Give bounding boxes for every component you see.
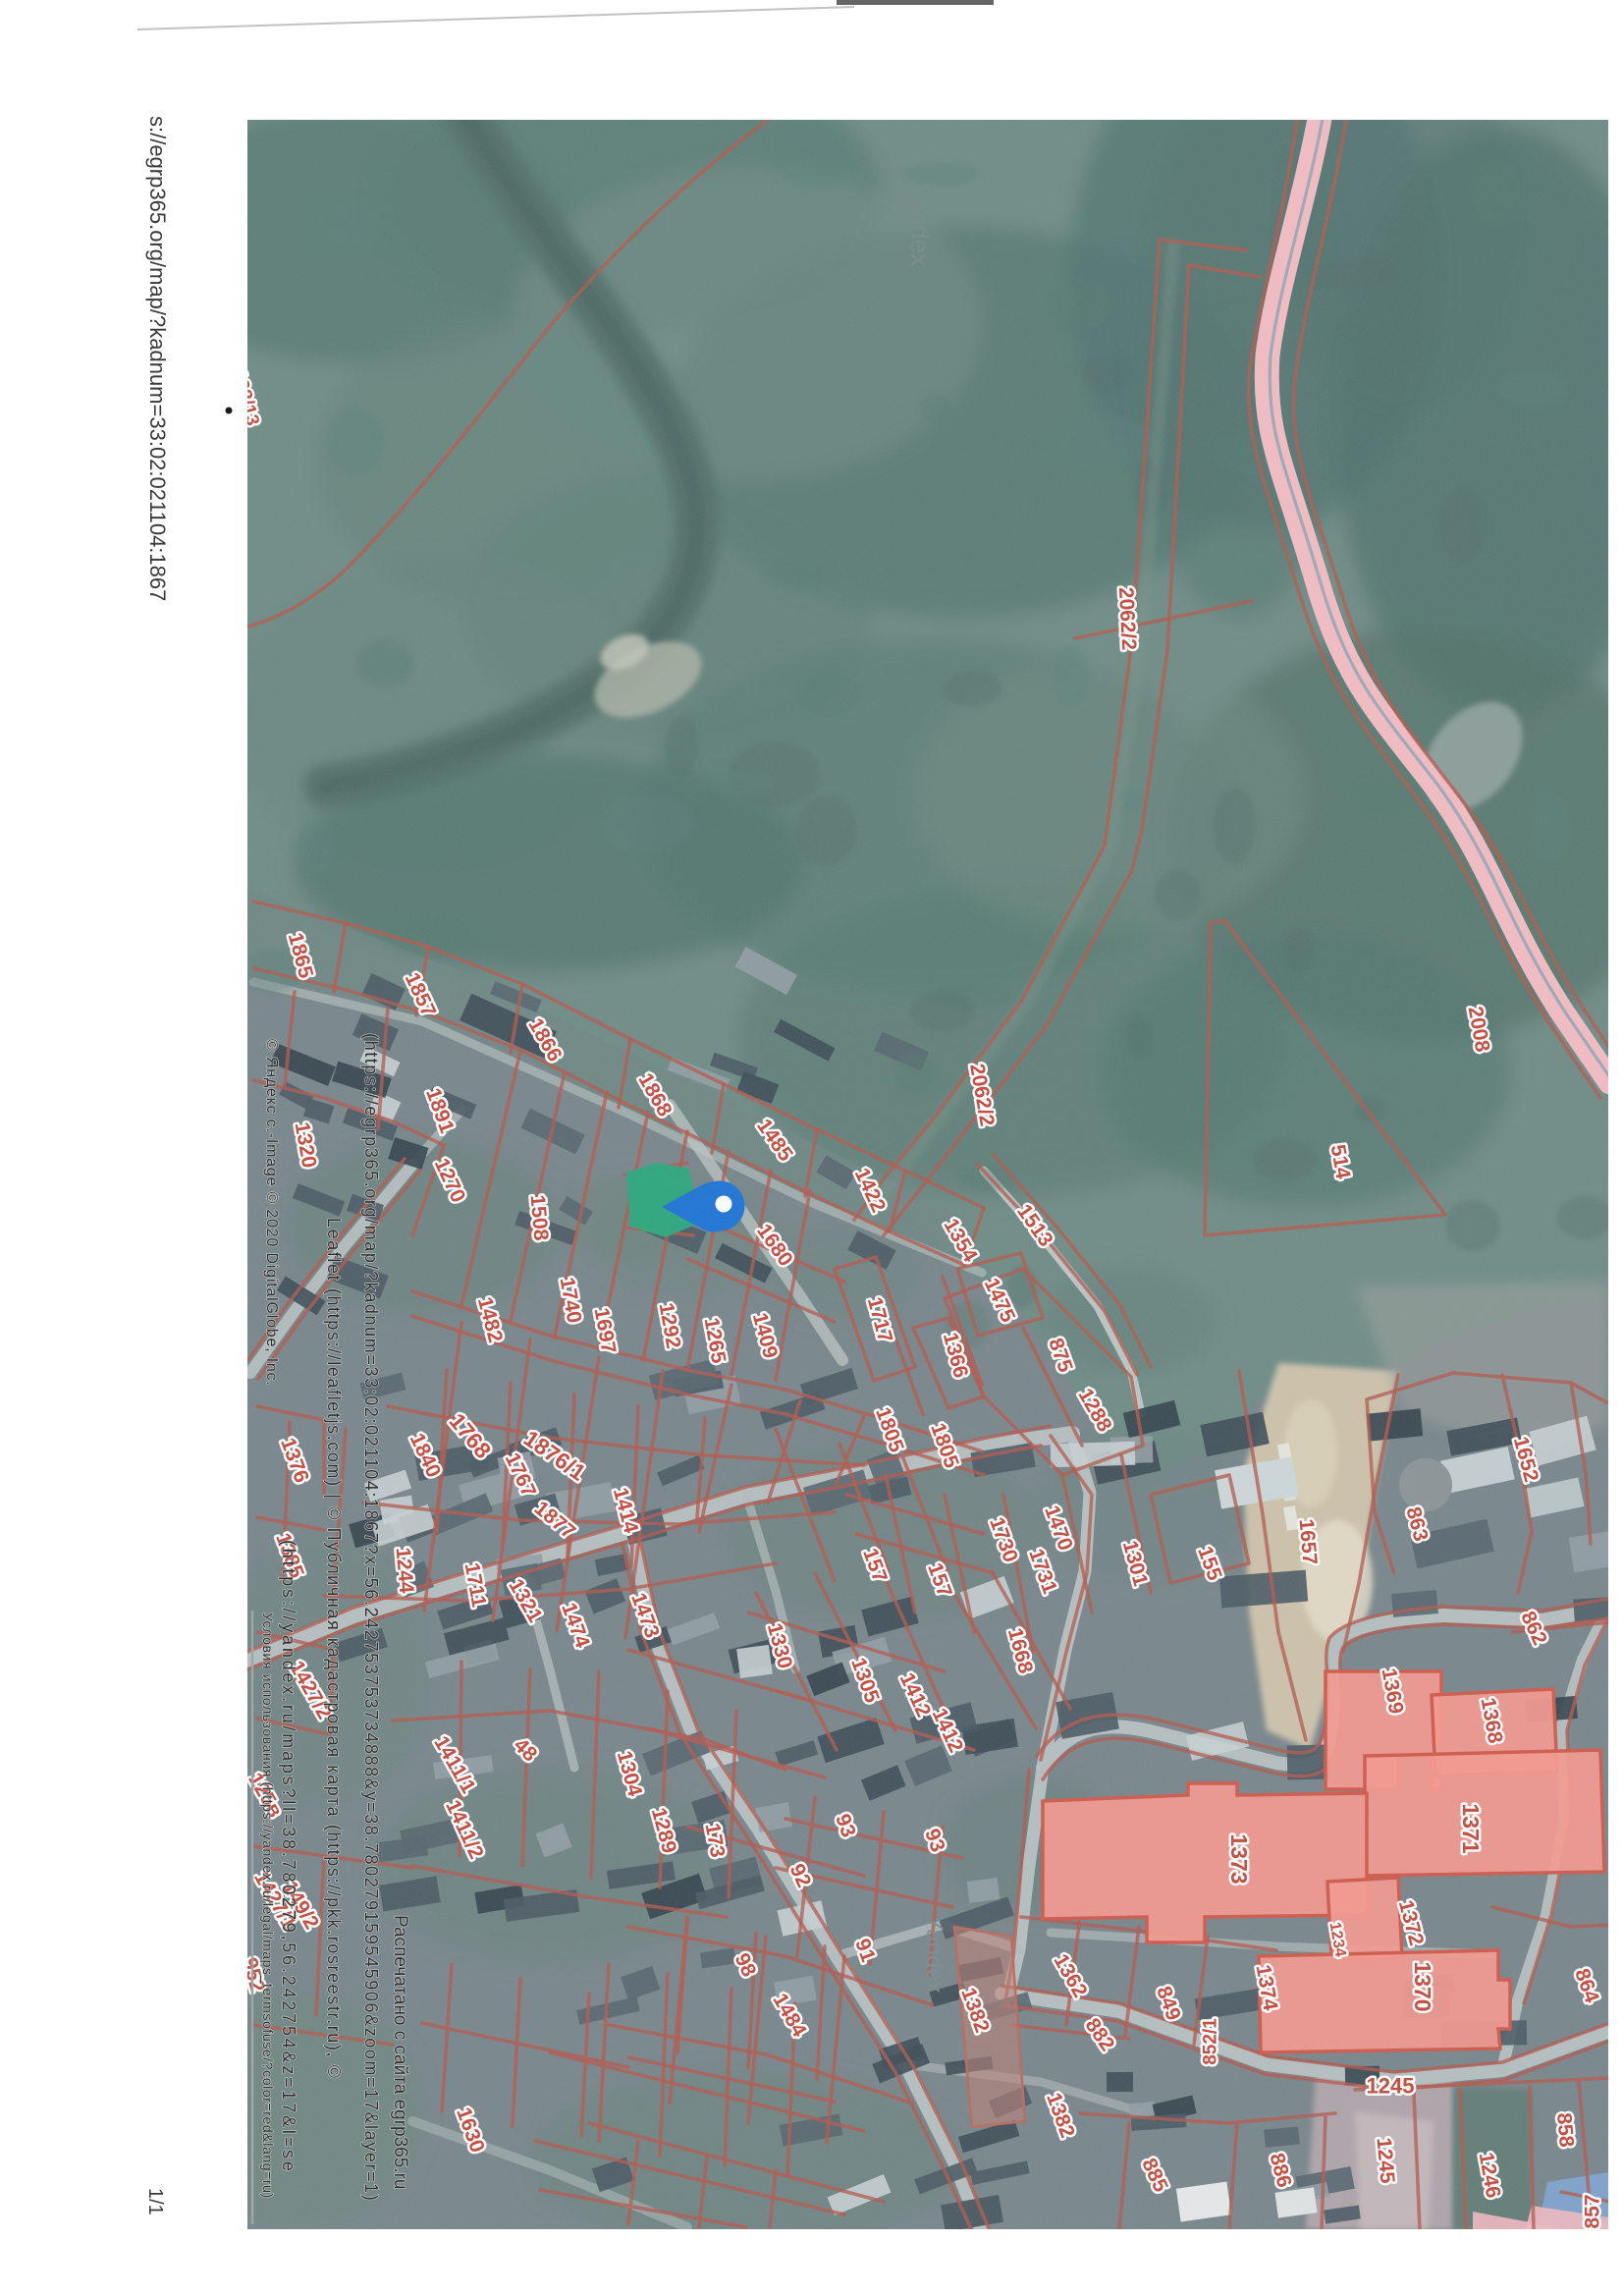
svg-text:1/1: 1/1: [144, 2188, 166, 2215]
svg-text:s://egrp365.org/map/?kadnum=33: s://egrp365.org/map/?kadnum=33:02:021104…: [145, 116, 170, 601]
